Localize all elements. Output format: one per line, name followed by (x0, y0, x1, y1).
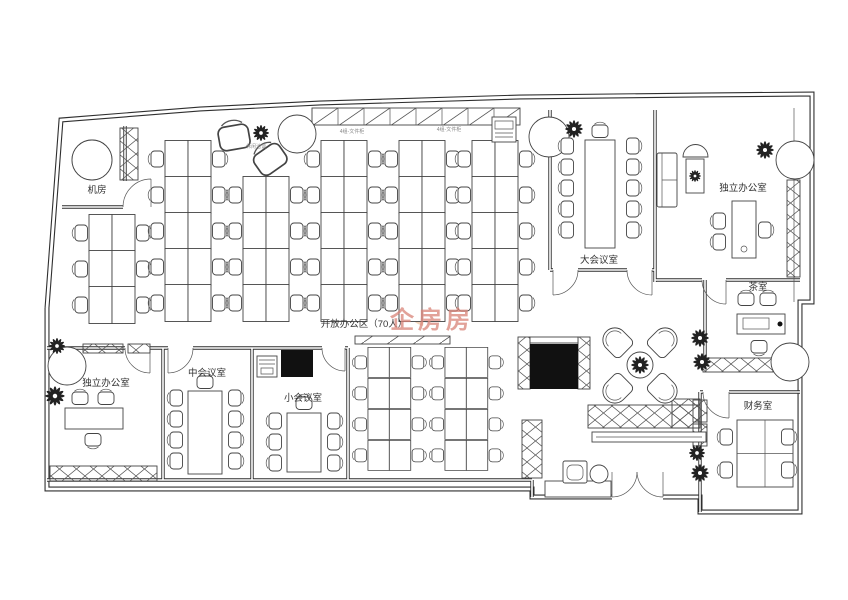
desk-row (72, 287, 152, 324)
desk-row (304, 249, 384, 286)
conference-table (188, 391, 222, 474)
room-tea-room (737, 290, 785, 356)
label-large-meeting: 大会议室 (580, 254, 618, 266)
glass-partition-2 (128, 344, 150, 353)
desk-row (382, 141, 462, 178)
label-machine-room: 机房 (87, 184, 106, 196)
conference-table (287, 413, 321, 472)
desk-row (429, 347, 503, 377)
desk (732, 201, 756, 258)
room-medium-meeting (167, 373, 244, 474)
casual-lounge (216, 115, 316, 178)
desk-row (148, 249, 228, 286)
desk-row (72, 215, 152, 252)
desk-row (226, 177, 306, 214)
wall-cabinet-right (787, 180, 800, 277)
desk-row (72, 251, 152, 288)
desk-row (352, 347, 426, 377)
desk-row (352, 440, 426, 470)
desk-row (148, 177, 228, 214)
desk-row (455, 213, 535, 250)
label-private-office-left: 独立办公室 (82, 377, 130, 389)
label-lounge: 休闲洽谈 (246, 143, 266, 150)
label-file-cabinet-b: 4组-文件柜 (437, 126, 461, 133)
open-office-desk-clusters-south (352, 347, 503, 470)
desk-row (352, 378, 426, 408)
logo-wall (518, 337, 590, 389)
floor-plan-canvas: 机房 开放办公区（70人） 大会议室 独立办公室 茶室 财务室 独立办公室 中会… (0, 0, 848, 600)
entry-column (522, 420, 542, 478)
plant-icon (756, 141, 774, 159)
room-large-meeting (558, 120, 642, 248)
desk-row (148, 213, 228, 250)
desk-row (304, 141, 384, 178)
desk-row (148, 141, 228, 178)
plant-icon (253, 125, 269, 141)
copier (492, 117, 516, 142)
column-hatch (120, 128, 138, 180)
desk-row (304, 213, 384, 250)
armchair-icon (645, 323, 682, 360)
desk-row (304, 177, 384, 214)
glass-partition-1 (83, 344, 123, 353)
label-finance: 财务室 (744, 400, 773, 412)
desk-row (382, 177, 462, 214)
reception-counter-return (672, 399, 700, 428)
plant-icon (691, 464, 709, 482)
room-small-meeting (257, 350, 343, 472)
desk-row (226, 285, 306, 322)
corridor-plants (691, 329, 711, 371)
label-medium-meeting: 中会议室 (188, 367, 226, 379)
desk-row (429, 409, 503, 439)
open-office-desk-clusters-north (72, 141, 535, 324)
desk-top-cabinet (355, 336, 450, 344)
desk-row (429, 440, 503, 470)
desk-row (455, 177, 535, 214)
floor-plan-drawing: 机房 开放办公区（70人） 大会议室 独立办公室 茶室 财务室 独立办公室 中会… (0, 0, 848, 600)
led-screen (530, 344, 578, 389)
desk (65, 408, 123, 429)
armchair-icon (598, 371, 635, 408)
desk-row (429, 378, 503, 408)
desk-row (304, 285, 384, 322)
label-small-meeting: 小会议室 (284, 392, 322, 404)
tv-screen (281, 350, 313, 377)
round-table (278, 115, 316, 153)
armchair-icon (598, 323, 635, 360)
side-table (590, 465, 608, 483)
label-private-office-top: 独立办公室 (719, 182, 767, 194)
file-cabinet-strip (312, 108, 520, 125)
desk-row (352, 409, 426, 439)
desk-row (382, 249, 462, 286)
room-machine-room (72, 140, 112, 180)
plant-icon (689, 445, 705, 461)
lounge-seating (598, 323, 682, 408)
desk-row (455, 249, 535, 286)
tea-room-cabinet (703, 358, 773, 372)
desk-row (148, 285, 228, 322)
office-cabinet-row (50, 466, 157, 481)
desk-row (455, 141, 535, 178)
desk-row (382, 213, 462, 250)
room-private-office-top-right (657, 141, 774, 258)
desk-row (226, 213, 306, 250)
desk-row (226, 249, 306, 286)
armchair-icon (683, 145, 708, 158)
label-tea-room: 茶室 (748, 281, 767, 293)
label-file-cabinet-a: 4组-文件柜 (340, 128, 364, 135)
watermark-text: 企房房 (390, 306, 474, 334)
